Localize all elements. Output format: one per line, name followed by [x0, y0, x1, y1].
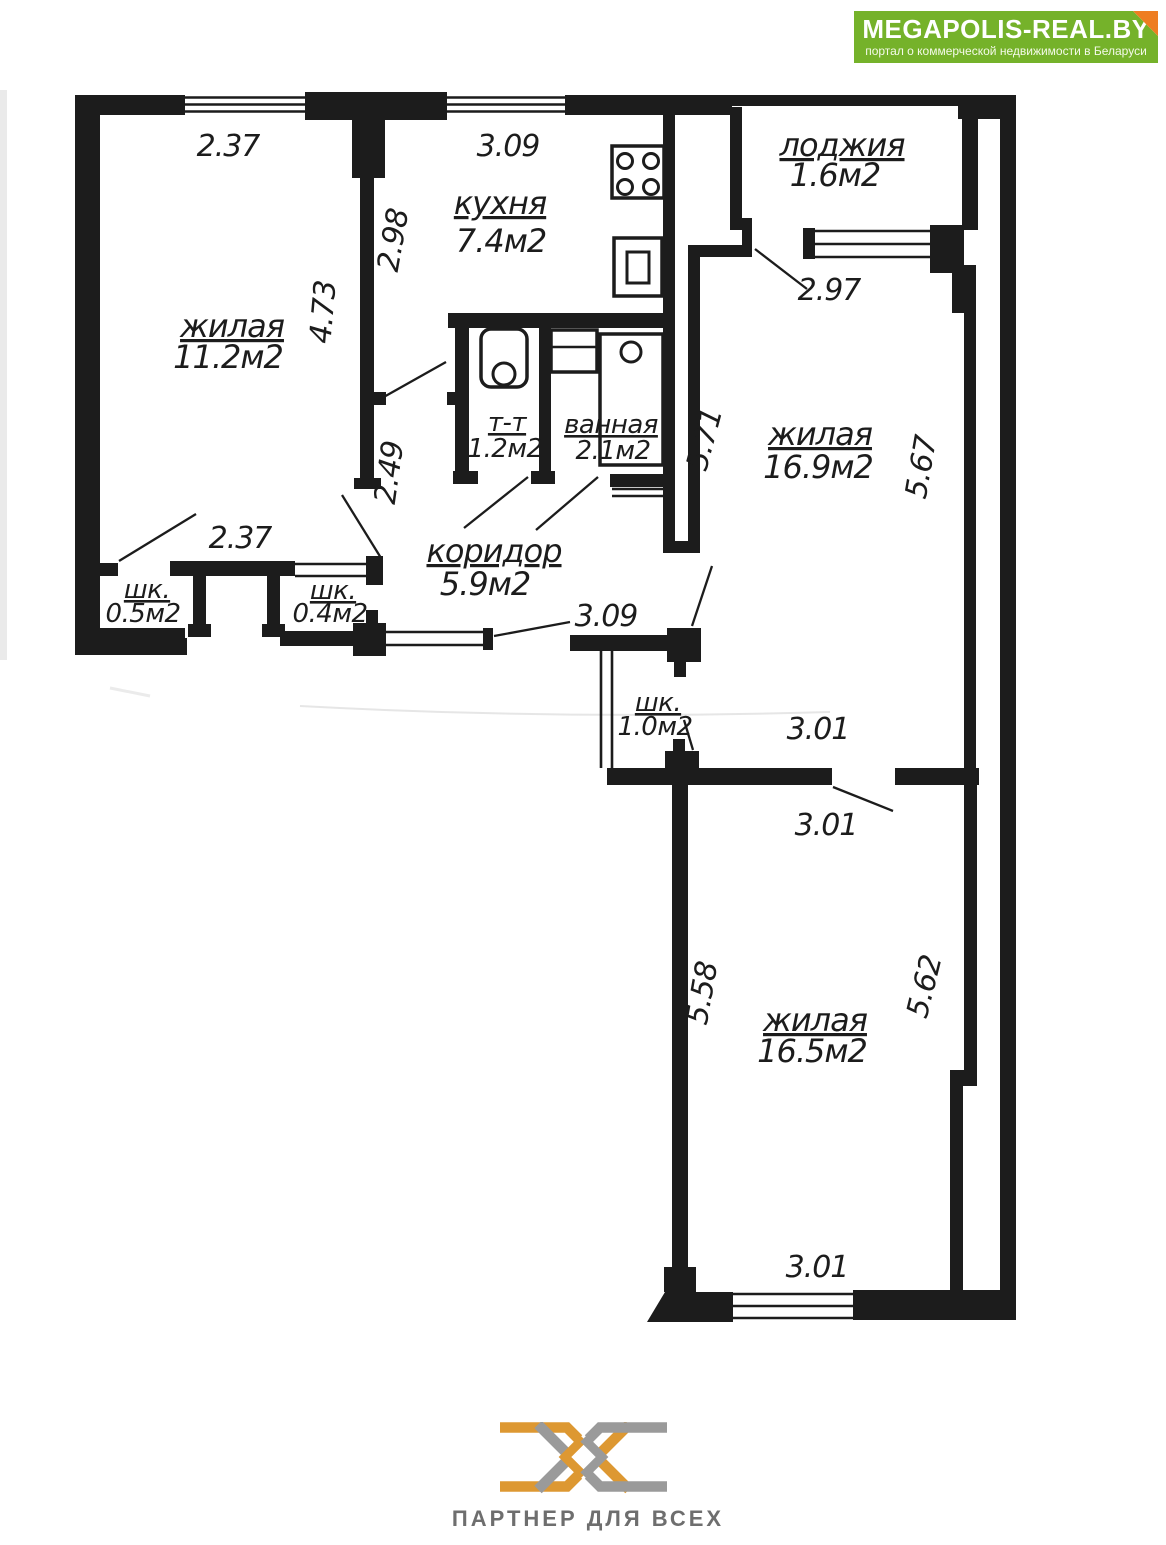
- dim-room1-depth: 4.73: [303, 279, 343, 345]
- room-label-toilet-area: 1.2м2: [467, 434, 542, 464]
- room-label-closet-left-area: 0.5м2: [105, 599, 180, 629]
- leader-hall-width: [119, 514, 196, 561]
- sink-icon: [551, 330, 597, 372]
- room-label-corridor-area: 5.9м2: [440, 565, 530, 603]
- window-loggia: [815, 231, 933, 257]
- agency-tagline: ПАРТНЕР ДЛЯ ВСЕХ: [388, 1506, 788, 1532]
- room-label-kitchen-name: кухня: [454, 184, 547, 222]
- kitchen-door-leaf: [382, 362, 446, 398]
- room-label-loggia-area: 1.6м2: [790, 156, 880, 194]
- room-label-bathroom-area: 2.1м2: [575, 436, 650, 466]
- dim-divider-lower: 2.49: [368, 439, 411, 506]
- closet-right-front: [295, 564, 368, 576]
- floorplan-drawing: жилая 11.2м2 кухня 7.4м2 лоджия 1.6м2 жи…: [0, 0, 1166, 1545]
- scanned-floorplan-page: MEGAPOLIS-REAL.BY портал о коммерческой …: [0, 0, 1166, 1545]
- stove-icon: [612, 146, 664, 198]
- walls: [75, 92, 1016, 1322]
- dim-hall-width: 2.37: [209, 521, 273, 556]
- dim-room3-depth-right: 5.62: [900, 952, 949, 1021]
- room-label-living2-area: 16.9м2: [763, 448, 873, 486]
- toilet-door-leaf: [464, 477, 528, 528]
- bathroom-door-leaf: [536, 477, 598, 530]
- agency-logo: [488, 1422, 688, 1500]
- room-label-living1-area: 11.2м2: [173, 338, 283, 376]
- window-room3: [733, 1294, 853, 1318]
- dim-closet-row-width: 3.01: [787, 712, 850, 747]
- room-label-kitchen-area: 7.4м2: [456, 222, 546, 260]
- room-label-closet-right-area: 0.4м2: [292, 599, 367, 629]
- agency-logo-knot: [500, 1425, 667, 1490]
- leader-corridor-width: [494, 622, 570, 636]
- fridge-icon: [614, 238, 662, 296]
- dim-kitchen-depth: 2.98: [371, 206, 416, 274]
- room-label-living3-area: 16.5м2: [757, 1032, 867, 1070]
- window-kitchen: [447, 98, 565, 112]
- dim-room2-depth-left: 5.71: [680, 405, 730, 475]
- room-label-closet-mid-area: 1.0м2: [617, 712, 692, 742]
- bathroom-threshold: [612, 489, 663, 496]
- dim-loggia-width: 2.97: [798, 273, 862, 308]
- window-room1: [185, 98, 305, 112]
- dim-kitchen-width: 3.09: [477, 129, 540, 164]
- corridor-thin-wall: [386, 632, 483, 645]
- dim-corridor-width: 3.09: [575, 599, 638, 634]
- dim-room3-width-top: 3.01: [795, 808, 858, 843]
- room-labels: жилая 11.2м2 кухня 7.4м2 лоджия 1.6м2 жи…: [105, 126, 905, 1070]
- leader-door-upper: [692, 566, 712, 626]
- dim-room2-depth-right: 5.67: [899, 432, 945, 501]
- room1-door-leaf: [342, 495, 381, 558]
- closet-mid-wall: [601, 651, 612, 768]
- dim-room1-width: 2.37: [197, 129, 261, 164]
- toilet-icon: [481, 329, 527, 387]
- dim-room3-width-bottom: 3.01: [786, 1250, 849, 1285]
